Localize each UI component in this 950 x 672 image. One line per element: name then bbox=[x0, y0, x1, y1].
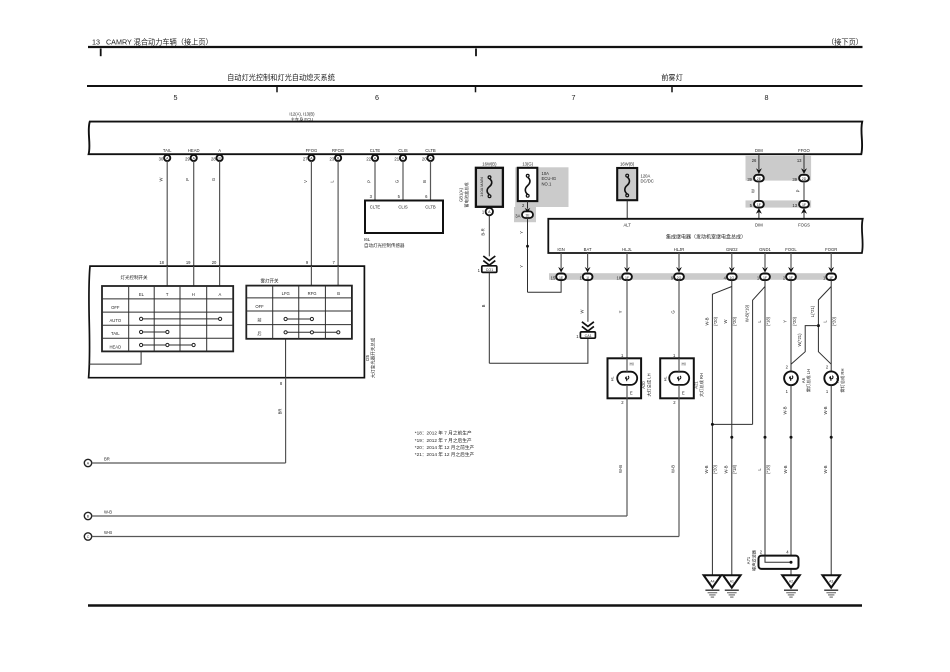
svg-text:B: B bbox=[481, 304, 486, 307]
svg-text:1G: 1G bbox=[729, 276, 734, 280]
svg-text:FFOG: FFOG bbox=[306, 148, 318, 153]
svg-text:HEAD: HEAD bbox=[109, 344, 121, 349]
svg-text:*20：2014 年 12 月之前生产: *20：2014 年 12 月之前生产 bbox=[415, 444, 475, 451]
svg-text:Y: Y bbox=[519, 265, 524, 268]
svg-text:大灯总成 LH: 大灯总成 LH bbox=[645, 373, 652, 396]
svg-text:LFG: LFG bbox=[282, 291, 290, 296]
svg-text:Y: Y bbox=[519, 231, 524, 234]
svg-text:30: 30 bbox=[159, 157, 164, 162]
svg-text:FOGR: FOGR bbox=[825, 247, 837, 252]
svg-text:前: 前 bbox=[257, 316, 261, 323]
svg-text:CLIS: CLIS bbox=[398, 204, 408, 209]
svg-text:雾灯总成 RH: 雾灯总成 RH bbox=[839, 369, 846, 393]
svg-text:(*20): (*20) bbox=[732, 316, 737, 326]
svg-text:(*18): (*18) bbox=[766, 464, 771, 474]
svg-text:Y: Y bbox=[618, 310, 623, 313]
svg-text:W-B: W-B bbox=[104, 530, 112, 535]
svg-text:2E: 2E bbox=[757, 177, 762, 181]
svg-text:ECU-IG: ECU-IG bbox=[542, 176, 557, 181]
svg-text:GND2: GND2 bbox=[726, 247, 738, 252]
svg-text:B: B bbox=[422, 180, 427, 183]
svg-text:P: P bbox=[796, 189, 801, 192]
svg-text:灯光控制开关: 灯光控制开关 bbox=[121, 274, 148, 281]
svg-text:HI: HI bbox=[630, 362, 634, 367]
svg-text:A: A bbox=[218, 148, 221, 153]
svg-text:A4: A4 bbox=[710, 580, 714, 584]
svg-text:Y: Y bbox=[782, 320, 787, 323]
svg-text:CLTE: CLTE bbox=[370, 204, 381, 209]
svg-text:W-B: W-B bbox=[704, 465, 709, 473]
svg-text:W-B: W-B bbox=[783, 406, 788, 414]
svg-text:1E: 1E bbox=[559, 276, 564, 280]
svg-text:G: G bbox=[394, 180, 399, 183]
svg-text:雾灯开关: 雾灯开关 bbox=[261, 277, 279, 284]
svg-text:13(G): 13(G) bbox=[522, 162, 533, 167]
svg-text:22: 22 bbox=[366, 157, 371, 162]
svg-text:P: P bbox=[185, 178, 190, 181]
svg-text:HLJR: HLJR bbox=[674, 247, 684, 252]
svg-text:W-B: W-B bbox=[723, 465, 728, 473]
svg-text:FFGO: FFGO bbox=[798, 148, 810, 153]
svg-text:*19：2012 年 7 月之后生产: *19：2012 年 7 月之后生产 bbox=[415, 437, 472, 444]
svg-text:2D: 2D bbox=[802, 177, 807, 181]
svg-text:W-B: W-B bbox=[823, 406, 828, 414]
svg-text:20: 20 bbox=[212, 260, 217, 265]
svg-text:T: T bbox=[166, 292, 169, 297]
svg-text:E: E bbox=[630, 391, 633, 396]
svg-text:CLTB: CLTB bbox=[425, 204, 436, 209]
svg-text:W-B: W-B bbox=[618, 465, 623, 473]
svg-text:W(*21): W(*21) bbox=[797, 333, 802, 347]
svg-text:2G: 2G bbox=[677, 276, 682, 280]
svg-text:(*20): (*20) bbox=[713, 316, 718, 326]
svg-text:10A: 10A bbox=[542, 171, 550, 176]
svg-text:39: 39 bbox=[747, 177, 752, 182]
svg-text:CLTE: CLTE bbox=[370, 148, 381, 153]
svg-text:6: 6 bbox=[375, 93, 379, 102]
svg-text:CO1: CO1 bbox=[486, 268, 493, 272]
svg-text:W: W bbox=[159, 177, 164, 181]
svg-text:E: E bbox=[682, 391, 685, 396]
svg-text:IGN: IGN bbox=[557, 247, 564, 252]
svg-text:CLTB: CLTB bbox=[425, 148, 436, 153]
svg-text:CA1: CA1 bbox=[585, 334, 592, 338]
svg-text:FOGL: FOGL bbox=[785, 247, 797, 252]
svg-text:1I: 1I bbox=[586, 276, 589, 280]
svg-text:39: 39 bbox=[792, 177, 797, 182]
svg-text:CLIS: CLIS bbox=[398, 148, 408, 153]
svg-text:7: 7 bbox=[572, 93, 576, 102]
svg-text:18: 18 bbox=[159, 260, 164, 265]
svg-text:A1: A1 bbox=[730, 580, 734, 584]
svg-text:1E: 1E bbox=[525, 214, 530, 218]
svg-text:P: P bbox=[366, 180, 371, 183]
svg-text:13 CAMRY 混合动力车辆（接上页）: 13 CAMRY 混合动力车辆（接上页） bbox=[92, 38, 213, 47]
svg-text:BR: BR bbox=[104, 457, 110, 462]
svg-text:W-B: W-B bbox=[104, 510, 112, 515]
svg-text:18: 18 bbox=[617, 276, 622, 281]
svg-text:(*18): (*18) bbox=[732, 464, 737, 474]
svg-text:21: 21 bbox=[394, 157, 399, 162]
svg-text:EL: EL bbox=[139, 292, 145, 297]
svg-text:A3: A3 bbox=[829, 580, 833, 584]
svg-text:*18：2012 年 7 月之前生产: *18：2012 年 7 月之前生产 bbox=[415, 430, 472, 437]
svg-text:(*20): (*20) bbox=[712, 464, 717, 474]
svg-text:TAIL: TAIL bbox=[111, 331, 120, 336]
svg-text:1F: 1F bbox=[625, 276, 629, 280]
svg-text:8: 8 bbox=[765, 93, 769, 102]
svg-text:DC/DC: DC/DC bbox=[641, 179, 654, 184]
svg-text:1F: 1F bbox=[757, 203, 761, 207]
svg-text:1F: 1F bbox=[789, 276, 793, 280]
svg-text:L(*21): L(*21) bbox=[810, 305, 815, 317]
svg-text:I6L: I6L bbox=[364, 237, 371, 242]
svg-text:I25: I25 bbox=[365, 354, 370, 361]
svg-text:G: G bbox=[671, 310, 676, 313]
svg-text:自动灯光控制和灯光自动熄灭系统: 自动灯光控制和灯光自动熄灭系统 bbox=[227, 73, 335, 82]
svg-text:W-B: W-B bbox=[704, 317, 709, 325]
svg-text:大灯总成 RH: 大灯总成 RH bbox=[698, 373, 705, 397]
svg-text:大灯变光器开关总成: 大灯变光器开关总成 bbox=[370, 337, 377, 378]
svg-text:(*20): (*20) bbox=[831, 316, 836, 326]
svg-text:B: B bbox=[337, 291, 340, 296]
svg-text:（接下页）: （接下页） bbox=[827, 38, 863, 47]
svg-text:A: A bbox=[219, 292, 222, 297]
svg-text:自动灯光控制传感器: 自动灯光控制传感器 bbox=[364, 242, 405, 249]
svg-text:BR: BR bbox=[278, 409, 283, 415]
svg-text:A71: A71 bbox=[746, 556, 751, 564]
svg-text:3A: 3A bbox=[515, 213, 520, 218]
svg-text:1F: 1F bbox=[829, 276, 833, 280]
svg-text:16W(B): 16W(B) bbox=[482, 162, 497, 167]
svg-text:1F: 1F bbox=[802, 203, 806, 207]
svg-text:雾灯总成 LH: 雾灯总成 LH bbox=[805, 369, 812, 392]
svg-text:DIM: DIM bbox=[755, 148, 763, 153]
svg-text:BAT: BAT bbox=[584, 247, 592, 252]
svg-text:23: 23 bbox=[330, 157, 335, 162]
svg-text:140A MAIN: 140A MAIN bbox=[479, 177, 484, 197]
svg-text:FOGS: FOGS bbox=[798, 222, 810, 227]
svg-text:噪声滤波器: 噪声滤波器 bbox=[750, 549, 757, 571]
svg-text:I12(A), I13(B): I12(A), I13(B) bbox=[289, 112, 315, 117]
svg-text:HEAD: HEAD bbox=[188, 148, 200, 153]
svg-text:26: 26 bbox=[752, 158, 757, 163]
svg-text:W: W bbox=[751, 189, 756, 193]
svg-text:ALT: ALT bbox=[624, 222, 632, 227]
svg-text:HLJL: HLJL bbox=[622, 247, 632, 252]
svg-text:5: 5 bbox=[174, 93, 178, 102]
svg-text:前雾灯: 前雾灯 bbox=[661, 73, 683, 82]
svg-text:B-R: B-R bbox=[481, 228, 486, 235]
svg-text:DIM: DIM bbox=[755, 222, 763, 227]
svg-text:16W(B): 16W(B) bbox=[620, 162, 635, 167]
svg-text:W-B: W-B bbox=[783, 465, 788, 473]
svg-text:NO.1: NO.1 bbox=[542, 182, 552, 187]
svg-text:27: 27 bbox=[303, 157, 308, 162]
svg-text:20: 20 bbox=[422, 157, 427, 162]
svg-text:OFF: OFF bbox=[255, 304, 264, 309]
svg-text:AUTO: AUTO bbox=[110, 318, 122, 323]
svg-text:W: W bbox=[579, 309, 584, 313]
svg-text:GB1(A): GB1(A) bbox=[458, 187, 463, 202]
svg-text:W: W bbox=[723, 319, 728, 323]
svg-text:120A: 120A bbox=[641, 173, 651, 178]
svg-text:后: 后 bbox=[257, 330, 261, 337]
svg-text:RFG: RFG bbox=[308, 291, 317, 296]
svg-text:A2: A2 bbox=[789, 580, 793, 584]
svg-text:*21：2014 年 12 月之后生产: *21：2014 年 12 月之后生产 bbox=[415, 451, 475, 458]
svg-text:W-B(*19): W-B(*19) bbox=[744, 304, 749, 322]
svg-text:C: C bbox=[87, 535, 90, 539]
svg-text:28: 28 bbox=[211, 157, 216, 162]
svg-text:G: G bbox=[211, 178, 216, 181]
svg-text:H: H bbox=[192, 292, 195, 297]
svg-text:13: 13 bbox=[792, 203, 797, 208]
svg-text:蓄电池盒总成: 蓄电池盒总成 bbox=[463, 182, 470, 207]
svg-text:V: V bbox=[303, 180, 308, 183]
svg-text:集成继电器（发动机室继电盒总成）: 集成继电器（发动机室继电盒总成） bbox=[666, 233, 746, 240]
svg-text:HL: HL bbox=[611, 376, 615, 381]
svg-text:GND1: GND1 bbox=[759, 247, 771, 252]
svg-text:(*18): (*18) bbox=[766, 316, 771, 326]
svg-text:(*20): (*20) bbox=[792, 316, 797, 326]
svg-text:15: 15 bbox=[551, 276, 556, 281]
svg-text:TAIL: TAIL bbox=[163, 148, 172, 153]
svg-text:1F: 1F bbox=[763, 276, 767, 280]
svg-text:OFF: OFF bbox=[111, 305, 120, 310]
svg-text:13: 13 bbox=[797, 158, 802, 163]
svg-text:19: 19 bbox=[186, 260, 191, 265]
svg-text:RFOG: RFOG bbox=[332, 148, 344, 153]
svg-text:HI: HI bbox=[682, 362, 686, 367]
svg-text:HL: HL bbox=[663, 376, 667, 381]
svg-text:W-B: W-B bbox=[671, 465, 676, 473]
svg-text:29: 29 bbox=[185, 157, 190, 162]
svg-text:W-B: W-B bbox=[823, 465, 828, 473]
